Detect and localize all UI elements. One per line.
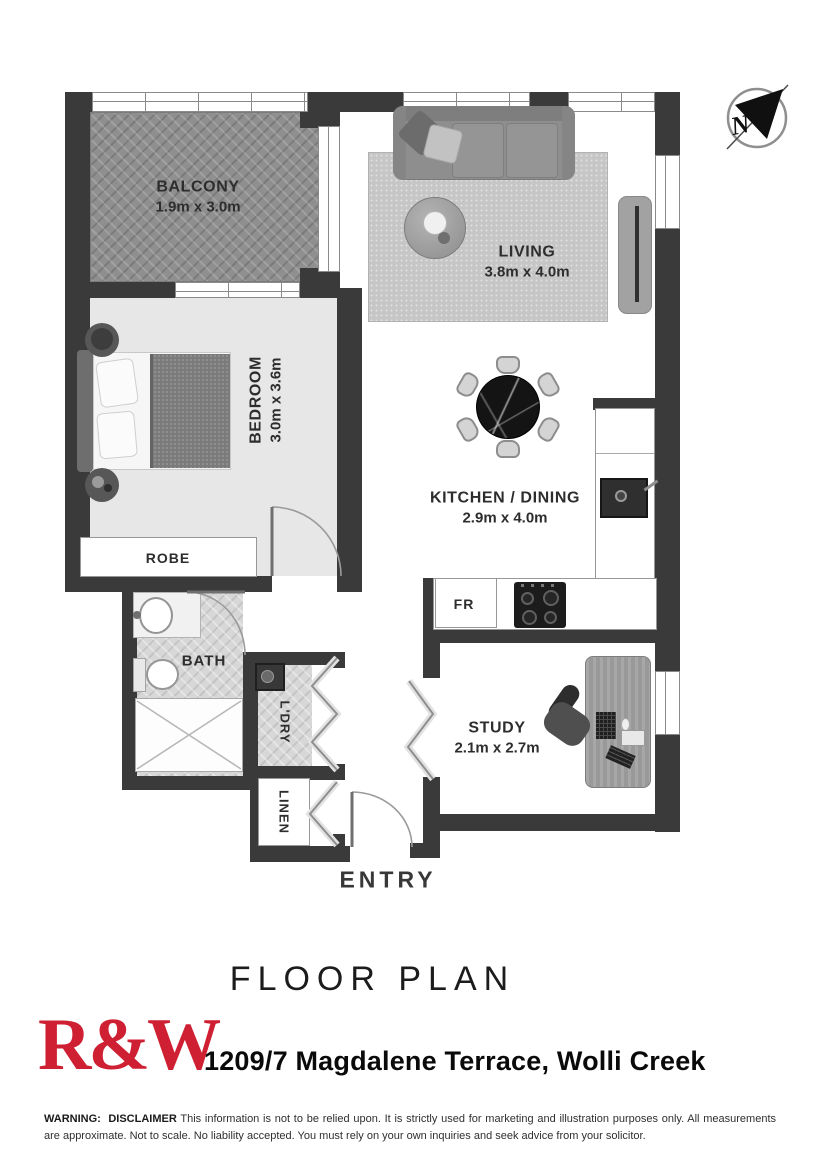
- sofa-cushion: [506, 123, 558, 178]
- balcony-name: BALCONY: [155, 177, 240, 198]
- wall-stub-linen-door: [333, 834, 345, 848]
- dining-chair: [534, 370, 562, 400]
- kitchen-dining-label: KITCHEN / DINING 2.9m x 4.0m: [430, 488, 580, 529]
- cooktop-knobs: [521, 584, 559, 587]
- fridge-label: FR: [454, 596, 475, 612]
- shower: [135, 698, 243, 772]
- wall-stub-laundry-door-bottom: [333, 764, 345, 780]
- living-name: LIVING: [484, 242, 569, 263]
- north-compass: N: [716, 76, 798, 158]
- burner: [543, 590, 559, 606]
- wall-bath-bottom: [122, 776, 262, 790]
- burner: [522, 610, 537, 625]
- sliding-door-balcony-bedroom: [175, 282, 300, 298]
- bed-headboard: [77, 350, 93, 472]
- window-living-right: [655, 155, 680, 229]
- dining-chair: [496, 356, 520, 374]
- robe-label: ROBE: [146, 550, 190, 566]
- dining-chair: [454, 370, 482, 400]
- burner: [521, 592, 534, 605]
- wall-top-center: [308, 92, 404, 112]
- wall-linen-bottom: [250, 846, 350, 862]
- wall-bedroom-bottom: [65, 576, 272, 592]
- toilet-bowl: [146, 659, 179, 690]
- wall-balcony-divider-bottom: [300, 268, 340, 298]
- living-dims: 3.8m x 4.0m: [484, 263, 569, 283]
- laundry-label: L'DRY: [278, 701, 293, 744]
- dining-table: [477, 376, 539, 438]
- coffee-table-decor: [438, 232, 450, 244]
- bed-pillow: [95, 358, 139, 409]
- balcony-dims: 1.9m x 3.0m: [155, 198, 240, 218]
- agency-logo: R&W: [38, 1008, 218, 1082]
- study-desk: [585, 656, 651, 788]
- disclaimer: WARNING: DISCLAIMER This information is …: [44, 1111, 776, 1145]
- entry-label: ENTRY: [339, 867, 436, 894]
- desk-laptop: [621, 730, 645, 746]
- wall-study-bottom: [423, 814, 680, 831]
- sink-drain: [615, 490, 627, 502]
- wall-stub-laundry-door-top: [333, 652, 345, 668]
- washing-machine-door: [261, 670, 274, 683]
- burner: [544, 611, 557, 624]
- toilet-tank: [133, 658, 146, 692]
- dining-chair: [496, 440, 520, 458]
- linen-label: LINEN: [277, 790, 292, 834]
- bath-basin: [139, 597, 173, 634]
- wall-balcony-bottom: [65, 282, 177, 298]
- bedside-decor: [92, 476, 104, 488]
- study-name: STUDY: [454, 718, 539, 739]
- bedroom-name: BEDROOM: [246, 356, 267, 444]
- bed-pillow: [96, 410, 138, 459]
- bedside-lamp: [91, 328, 113, 350]
- sofa-arm-left: [393, 106, 406, 180]
- dining-chair: [534, 414, 562, 444]
- window-balcony-top: [92, 92, 308, 112]
- wall-kitchen-study-divider: [423, 630, 658, 643]
- bedside-decor: [104, 484, 112, 492]
- basin-faucet: [133, 611, 141, 619]
- warning-label: WARNING:: [44, 1113, 101, 1125]
- tv-screen: [635, 206, 639, 302]
- bath-label: BATH: [182, 653, 227, 670]
- disclaimer-label: DISCLAIMER: [108, 1113, 176, 1125]
- wall-bedroom-right: [337, 288, 362, 592]
- window-living-top-right: [568, 92, 655, 112]
- desk-keyboard: [596, 712, 616, 739]
- cooktop: [514, 582, 566, 628]
- dining-chair: [454, 414, 482, 444]
- sliding-door-balcony-living: [318, 126, 340, 272]
- bedroom-dims: 3.0m x 3.6m: [267, 356, 287, 444]
- property-address: 1209/7 Magdalene Terrace, Wolli Creek: [204, 1046, 706, 1077]
- sofa-arm-right: [562, 106, 575, 180]
- bedroom-label: BEDROOM 3.0m x 3.6m: [246, 356, 287, 444]
- balcony-label: BALCONY 1.9m x 3.0m: [155, 177, 240, 218]
- floor-plan-page: N BALCONY 1.9m x 3.0m LIVING 3.8m x 4.0m…: [0, 0, 813, 1150]
- study-dims: 2.1m x 2.7m: [454, 739, 539, 759]
- living-label: LIVING 3.8m x 4.0m: [484, 242, 569, 283]
- bed-blanket: [150, 354, 230, 468]
- kitchen-dining-name: KITCHEN / DINING: [430, 488, 580, 509]
- kitchen-dining-dims: 2.9m x 4.0m: [430, 509, 580, 529]
- plan-title: FLOOR PLAN: [65, 960, 680, 999]
- study-label: STUDY 2.1m x 2.7m: [454, 718, 539, 759]
- window-study-right: [655, 671, 680, 735]
